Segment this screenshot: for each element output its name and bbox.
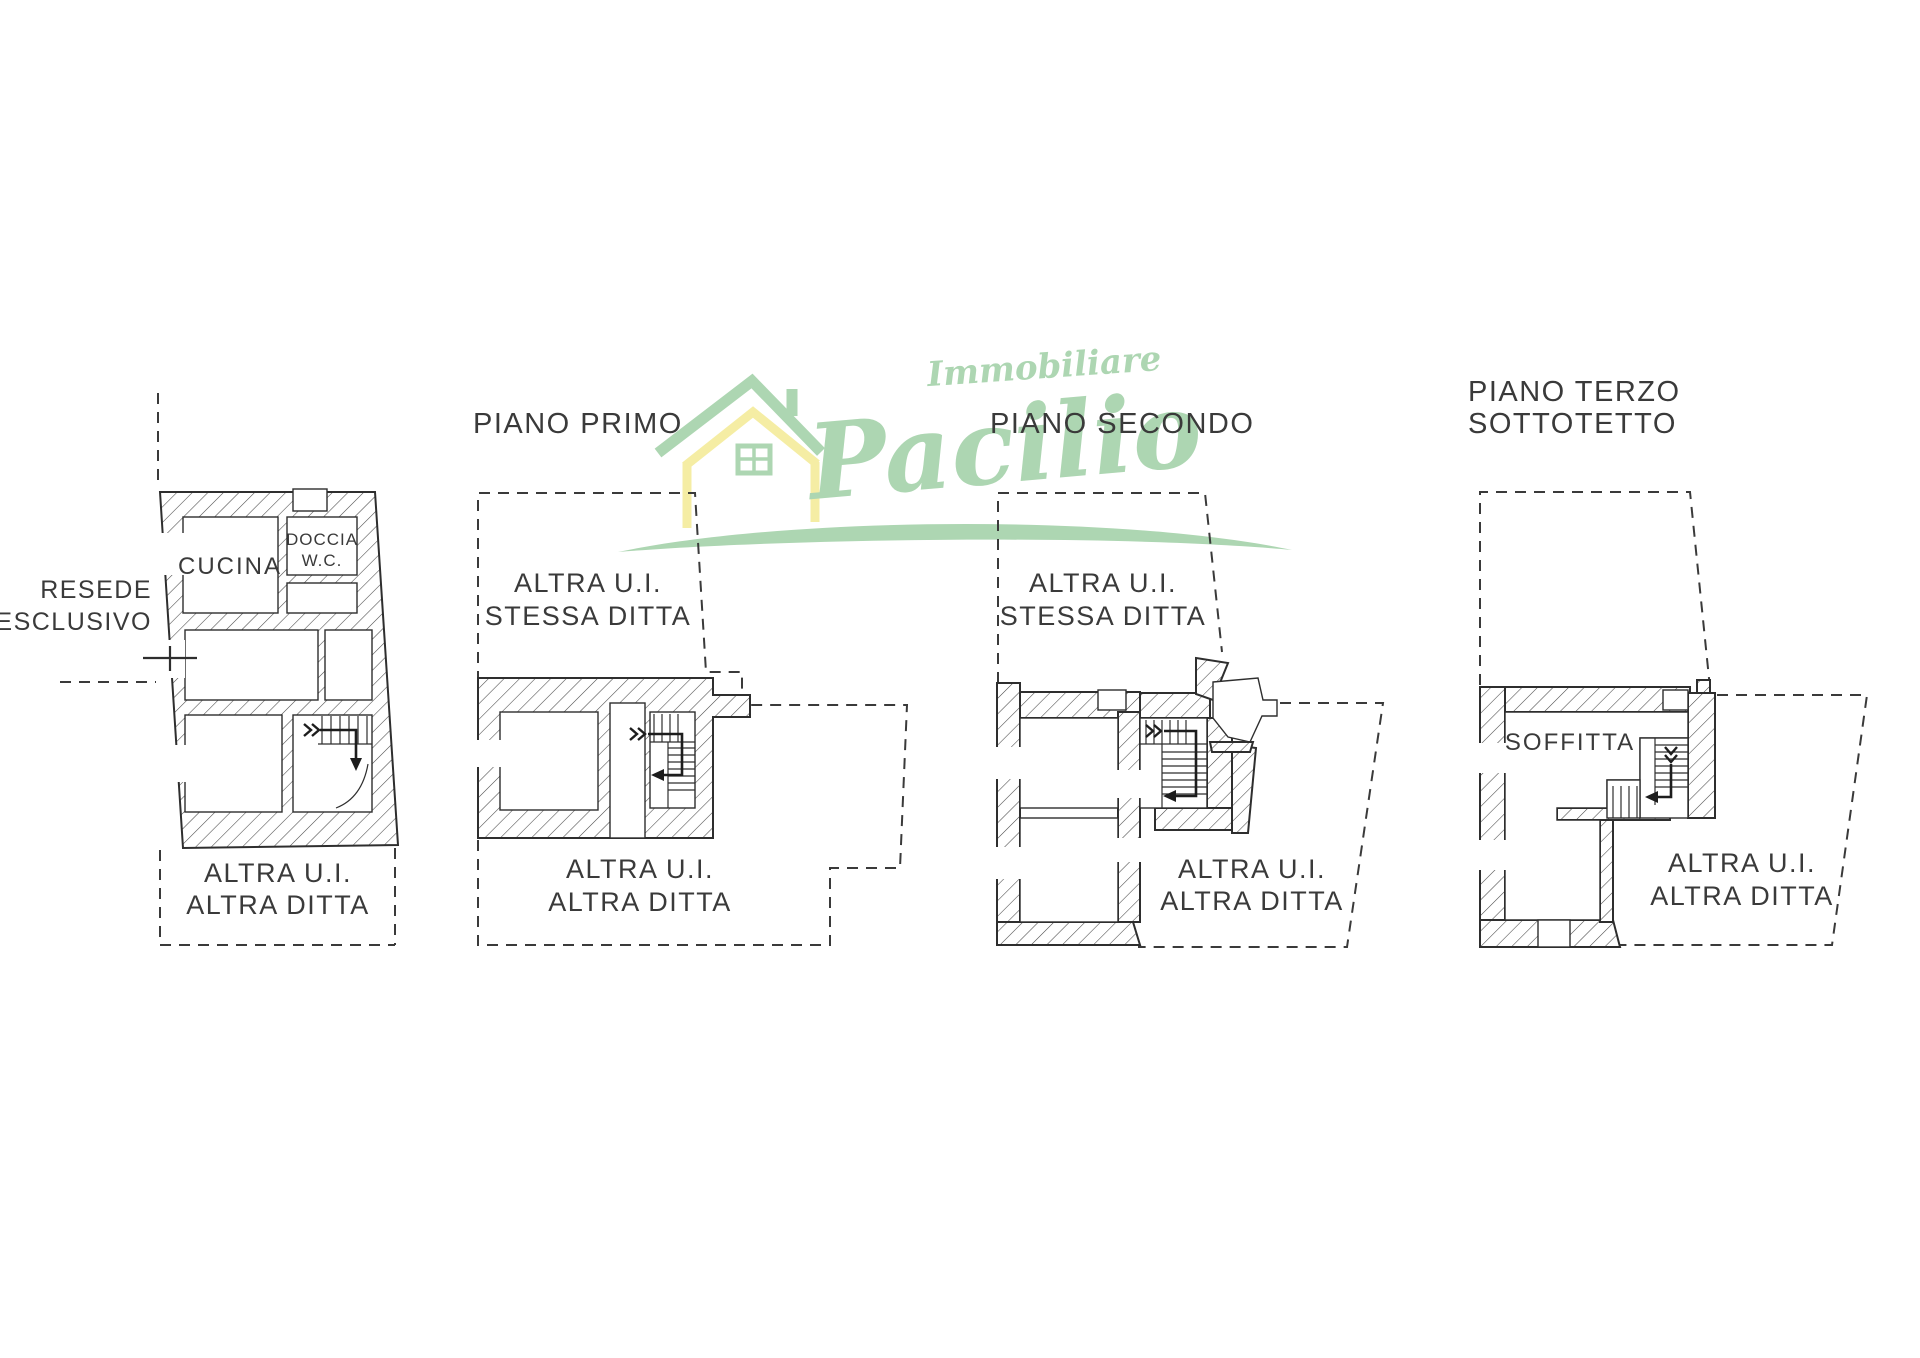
zone-same-line2: STESSA DITTA xyxy=(1000,601,1207,631)
wall-stair-right-lower xyxy=(1232,745,1256,833)
zone-label-line2: ALTRA DITTA xyxy=(186,890,370,920)
door-opening xyxy=(1478,743,1506,773)
room-kitchen-label: CUCINA xyxy=(178,553,282,580)
brand-watermark: Immobiliare Pacilio xyxy=(618,339,1292,552)
zone-other-line1: ALTRA U.I. xyxy=(1178,854,1326,884)
door-opening xyxy=(1116,770,1142,798)
floorplan-sheet: Immobiliare Pacilio RESEDE ESCLUSIVO xyxy=(0,0,1920,1358)
hallway xyxy=(610,703,645,838)
house-window-panes xyxy=(738,446,770,473)
same-company-boundary xyxy=(478,493,742,705)
zone-other-line2: ALTRA DITTA xyxy=(1160,886,1344,916)
door-opening xyxy=(161,745,188,782)
window-opening xyxy=(1538,920,1570,947)
zone-other-line2: ALTRA DITTA xyxy=(548,887,732,917)
wall-middle xyxy=(1118,712,1140,922)
wall-bottom xyxy=(997,922,1140,945)
room-middle xyxy=(185,630,318,700)
wall-right xyxy=(1688,693,1715,818)
room-shower-label-line2: W.C. xyxy=(302,551,343,570)
wall-stair-bottom xyxy=(1155,808,1232,830)
window-opening xyxy=(1663,690,1688,710)
door-opening xyxy=(476,740,503,767)
house-logo-icon xyxy=(658,381,821,528)
wall-left xyxy=(1480,687,1505,947)
plan-title-line2: SOTTOTETTO xyxy=(1468,408,1677,440)
brand-name-main: Pacilio xyxy=(800,367,1206,524)
door-opening xyxy=(995,847,1022,879)
wall-inner-vertical xyxy=(1600,820,1613,922)
stairwell xyxy=(650,712,695,808)
zone-other-line2: ALTRA DITTA xyxy=(1650,881,1834,911)
wall-top xyxy=(1480,687,1690,712)
room-attic-label: SOFFITTA xyxy=(1505,729,1635,756)
room-closet xyxy=(287,583,357,613)
stairwell xyxy=(1640,738,1688,818)
room-lower xyxy=(1020,818,1118,922)
door-opening xyxy=(1116,838,1142,862)
window-opening xyxy=(1098,690,1126,710)
room-lower-left xyxy=(185,715,282,812)
zone-same-line1: ALTRA U.I. xyxy=(514,568,662,598)
floorplan-canvas: Immobiliare Pacilio RESEDE ESCLUSIVO xyxy=(0,0,1920,1358)
resede-label-line2: ESCLUSIVO xyxy=(0,608,152,636)
plan-ground-floor: RESEDE ESCLUSIVO CUCINA DOCCIA W.C. ALTR… xyxy=(0,393,398,945)
room-shower-label-line1: DOCCIA xyxy=(286,530,358,549)
zone-same-line1: ALTRA U.I. xyxy=(1029,568,1177,598)
resede-label-line1: RESEDE xyxy=(40,576,152,604)
plan-title-line1: PIANO TERZO xyxy=(1468,376,1681,408)
zone-label-line1: ALTRA U.I. xyxy=(204,858,352,888)
room-middle-right xyxy=(325,630,372,700)
upper-boundary xyxy=(1480,492,1710,688)
door-opening xyxy=(1478,840,1506,870)
room-upper xyxy=(1020,718,1118,808)
protrusion-wall-lower xyxy=(1210,742,1253,752)
wall-stair-top xyxy=(1140,693,1210,718)
door-opening xyxy=(995,747,1022,779)
zone-other-line1: ALTRA U.I. xyxy=(566,854,714,884)
plan-third-floor: PIANO TERZO SOTTOTETTO SOFFITTA ALTRA U.… xyxy=(1468,376,1867,947)
room-main xyxy=(500,712,598,810)
brand-swoosh xyxy=(618,524,1292,552)
wall-right-notch xyxy=(1697,680,1710,693)
plan-title: PIANO PRIMO xyxy=(473,408,683,440)
window-opening xyxy=(293,489,327,511)
zone-same-line2: STESSA DITTA xyxy=(485,601,692,631)
plan-title: PIANO SECONDO xyxy=(990,408,1254,440)
zone-other-line1: ALTRA U.I. xyxy=(1668,848,1816,878)
wall-left xyxy=(997,683,1020,945)
stair-landing xyxy=(1607,780,1640,818)
